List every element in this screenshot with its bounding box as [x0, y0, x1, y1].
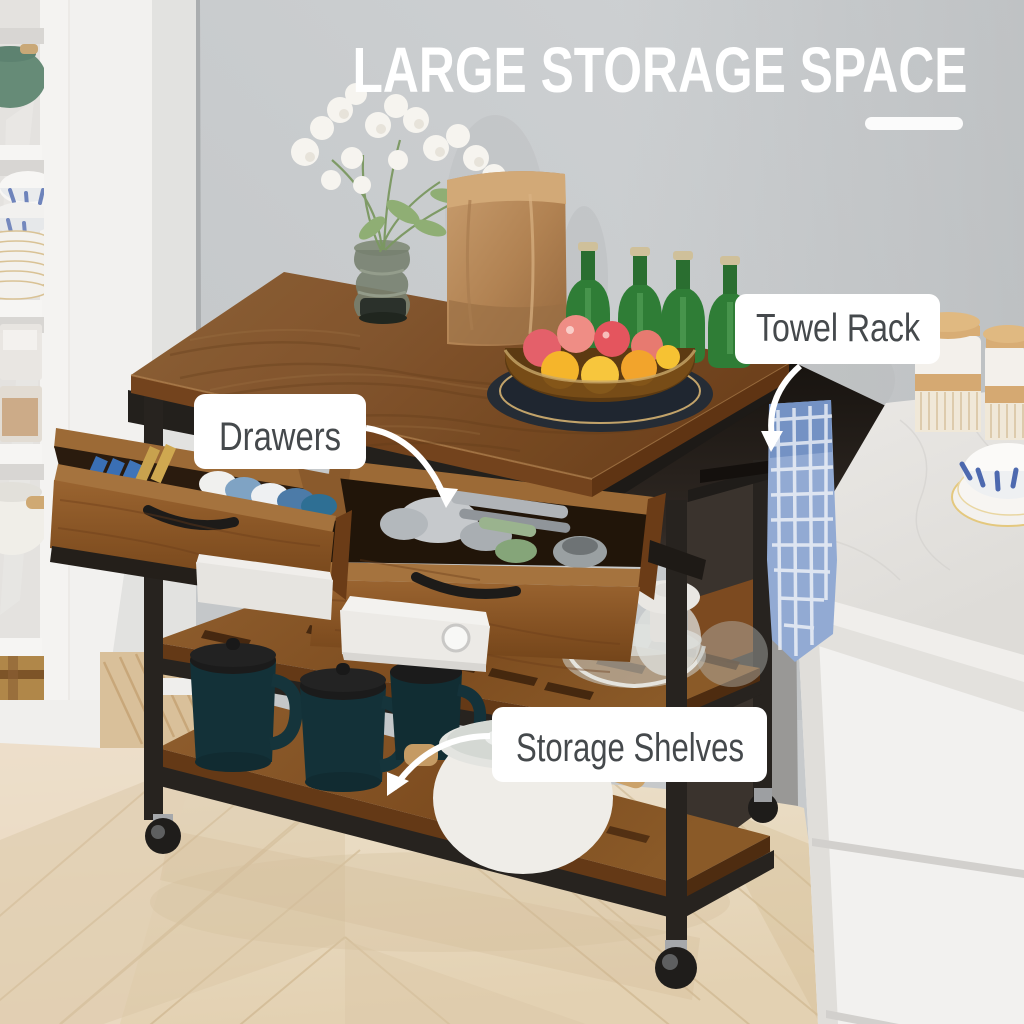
svg-text:Towel Rack: Towel Rack — [756, 307, 920, 350]
svg-text:Storage Shelves: Storage Shelves — [516, 726, 744, 770]
svg-text:LARGE STORAGE SPACE: LARGE STORAGE SPACE — [353, 34, 968, 106]
svg-text:Drawers: Drawers — [219, 415, 341, 459]
